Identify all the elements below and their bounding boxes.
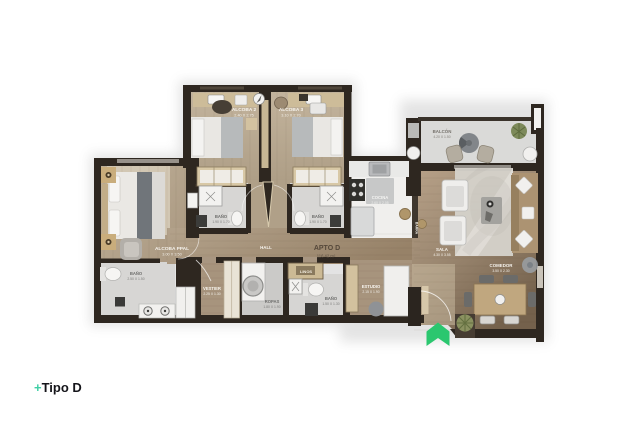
svg-text:HALL: HALL (260, 245, 272, 250)
svg-text:+Tipo D: +Tipo D (34, 380, 82, 395)
svg-text:1.50 X 1.30: 1.50 X 1.30 (322, 302, 339, 306)
svg-text:SALA: SALA (436, 247, 449, 252)
svg-text:3.10 X 2.70: 3.10 X 2.70 (281, 114, 300, 118)
svg-text:1.90 X 1.70: 1.90 X 1.70 (212, 220, 229, 224)
svg-text:4.20 X 1.50: 4.20 X 1.50 (433, 135, 450, 139)
svg-text:BAÑO: BAÑO (325, 296, 338, 301)
svg-text:ALCOBA 2: ALCOBA 2 (232, 107, 257, 113)
svg-text:2.15 X 1.90: 2.15 X 1.90 (362, 290, 379, 294)
svg-text:2.40 X 2.75: 2.40 X 2.75 (234, 114, 253, 118)
svg-text:BALCÓN: BALCÓN (433, 129, 452, 134)
svg-text:4.30 X 3.55: 4.30 X 3.55 (433, 253, 450, 257)
svg-text:COCINA: COCINA (372, 195, 389, 200)
svg-text:3.50 X 2.30: 3.50 X 2.30 (492, 269, 509, 273)
svg-text:1.80 X 1.90: 1.80 X 1.90 (263, 305, 280, 309)
svg-text:2.50 X 1.50: 2.50 X 1.50 (127, 277, 144, 281)
svg-text:116.42 m²: 116.42 m² (317, 254, 336, 259)
svg-text:2.25 X 1.30: 2.25 X 1.30 (203, 292, 220, 296)
svg-text:ESTUDIO: ESTUDIO (362, 284, 381, 289)
svg-text:BAÑO: BAÑO (130, 271, 143, 276)
svg-text:VESTIER: VESTIER (203, 286, 221, 291)
svg-text:COMEDOR: COMEDOR (490, 263, 514, 268)
svg-text:LINOS: LINOS (300, 269, 313, 274)
svg-text:APTO D: APTO D (314, 245, 340, 252)
svg-text:3.00 X 3.50: 3.00 X 3.50 (162, 253, 181, 257)
svg-text:BAÑO: BAÑO (215, 214, 228, 219)
svg-text:BAÑO: BAÑO (312, 214, 325, 219)
svg-text:ALCOBA 3: ALCOBA 3 (279, 107, 304, 113)
svg-text:1.90 X 1.70: 1.90 X 1.70 (309, 220, 326, 224)
svg-text:ROPAS: ROPAS (265, 299, 280, 304)
svg-text:BARRA: BARRA (415, 222, 419, 235)
svg-text:2.60 X 2.05: 2.60 X 2.05 (371, 201, 388, 205)
svg-text:ALCOBA PPAL: ALCOBA PPAL (155, 246, 189, 252)
